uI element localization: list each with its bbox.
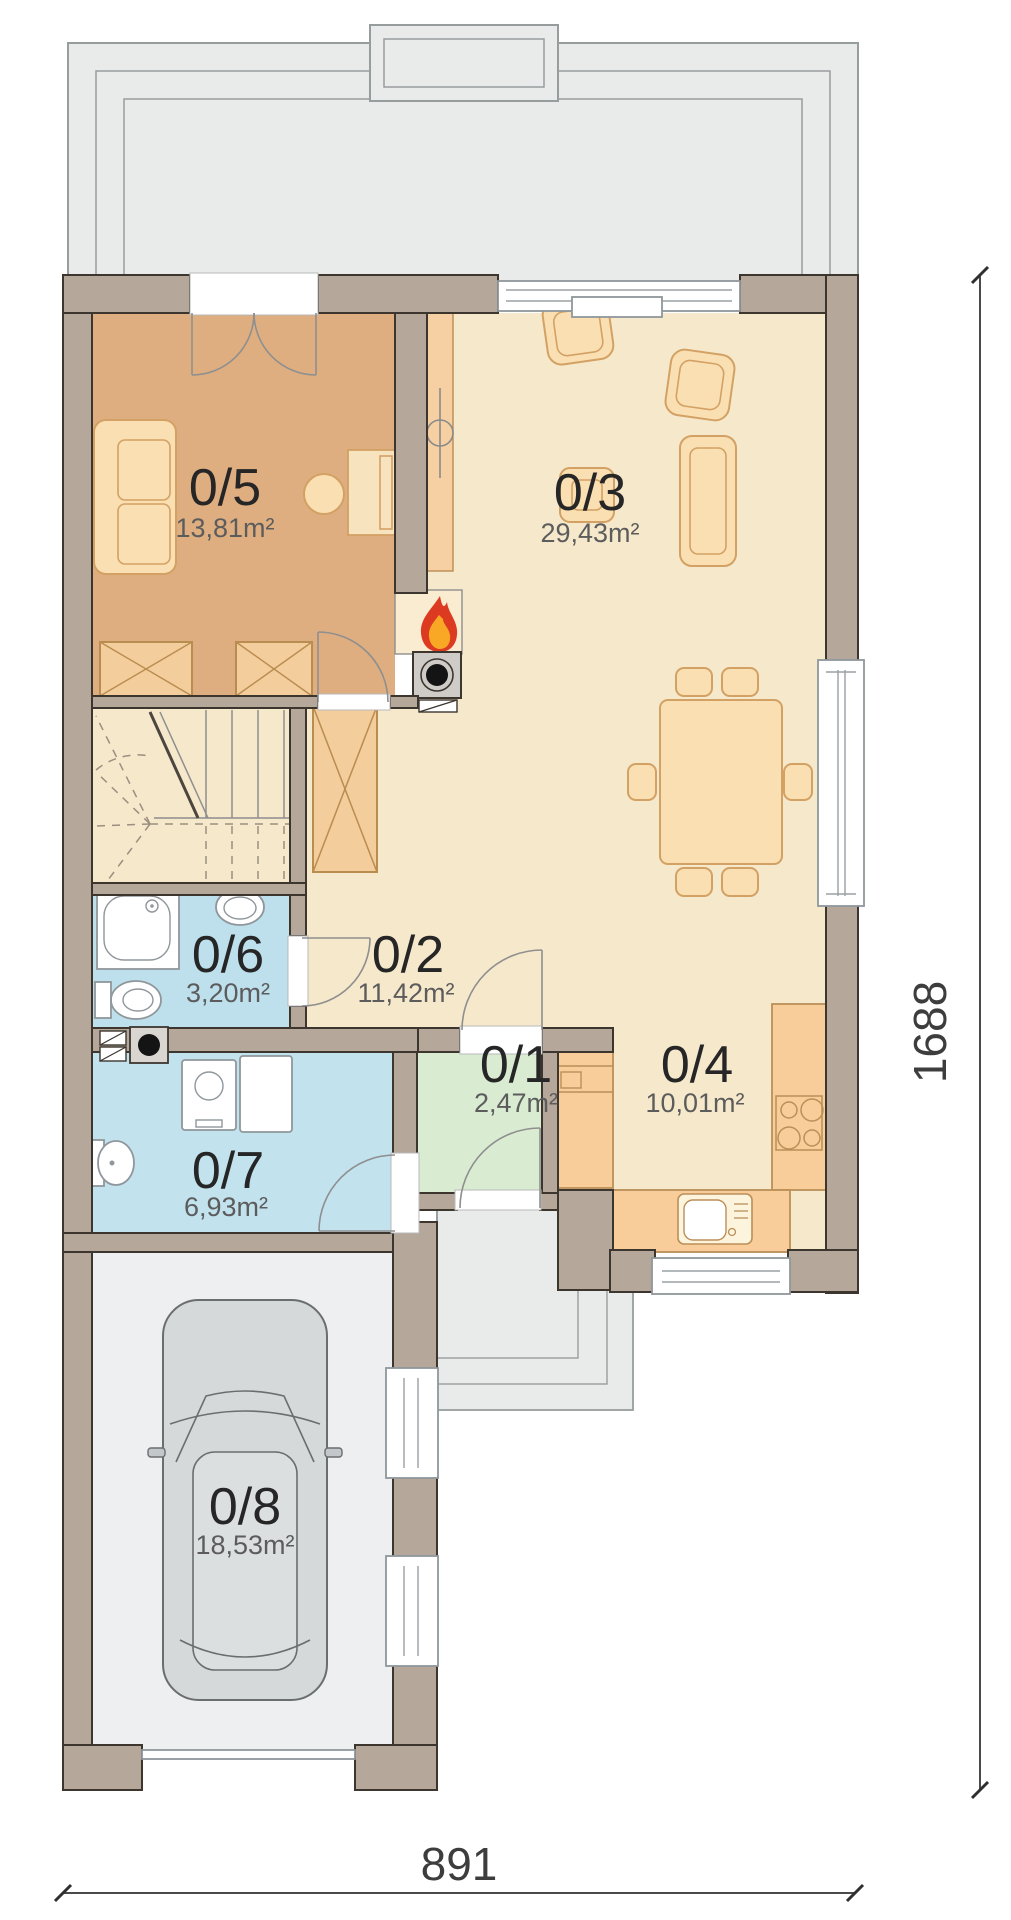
dimension-height: 1688: [904, 267, 988, 1798]
kitchen-counter-right: [772, 1004, 826, 1190]
floor-plan-drawing: 891 1688 0/5 13,81m² 0/3 29,43m² 0/6 3,2…: [0, 0, 1011, 1920]
appliance: [240, 1056, 292, 1132]
toilet: [95, 981, 161, 1019]
room-0-7-area: 6,93m²: [184, 1192, 268, 1222]
dimension-height-label: 1688: [904, 981, 956, 1083]
room-0-3-label: 0/3: [554, 464, 626, 522]
room-0-1-label: 0/1: [480, 1036, 552, 1094]
chimney-flue-icon: [413, 652, 461, 712]
room-0-4-label: 0/4: [661, 1036, 733, 1094]
kitchen-window: [652, 1258, 790, 1294]
floor-plan-canvas: 891 1688 0/5 13,81m² 0/3 29,43m² 0/6 3,2…: [0, 0, 1011, 1920]
living-room-glazing: [498, 281, 740, 317]
room-0-6-area: 3,20m²: [186, 978, 270, 1008]
room-0-3-area: 29,43m²: [540, 518, 639, 548]
utility-sink: [92, 1140, 134, 1186]
kitchen-sink: [678, 1194, 752, 1244]
terrace: [68, 25, 858, 308]
wardrobe: [236, 642, 312, 696]
garage-door: [142, 1750, 355, 1759]
desk: [348, 450, 395, 535]
room-0-5-area: 13,81m²: [175, 513, 274, 543]
sofa: [680, 436, 736, 566]
wardrobe: [100, 642, 192, 696]
floor-room-0-3: [427, 313, 826, 1028]
shower: [97, 889, 179, 969]
kitchen-tall-cabinet: [558, 1036, 613, 1188]
sofa: [94, 420, 176, 574]
living-room-window: [818, 660, 864, 906]
room-0-8-label: 0/8: [209, 1478, 281, 1536]
room-0-4-area: 10,01m²: [645, 1088, 744, 1118]
floor-stair-hall: [92, 708, 290, 883]
dimension-width: 891: [55, 1838, 863, 1901]
armchair: [664, 348, 737, 422]
room-0-6-label: 0/6: [192, 926, 264, 984]
room-0-2-area: 11,42m²: [357, 978, 454, 1008]
room-0-5-label: 0/5: [189, 459, 261, 517]
hall-closet: [313, 706, 377, 872]
terrace-top-box: [370, 25, 558, 101]
garage-window: [386, 1556, 438, 1666]
desk-chair: [304, 474, 344, 514]
dining-table: [660, 700, 782, 864]
room-0-1-area: 2,47m²: [474, 1088, 558, 1118]
garage-window: [386, 1368, 438, 1478]
room-0-2-label: 0/2: [372, 926, 444, 984]
dimension-width-label: 891: [421, 1838, 498, 1890]
washing-machine: [182, 1060, 236, 1130]
vent-flue-icon: [100, 1027, 168, 1063]
room-0-8-area: 18,53m²: [195, 1530, 294, 1560]
